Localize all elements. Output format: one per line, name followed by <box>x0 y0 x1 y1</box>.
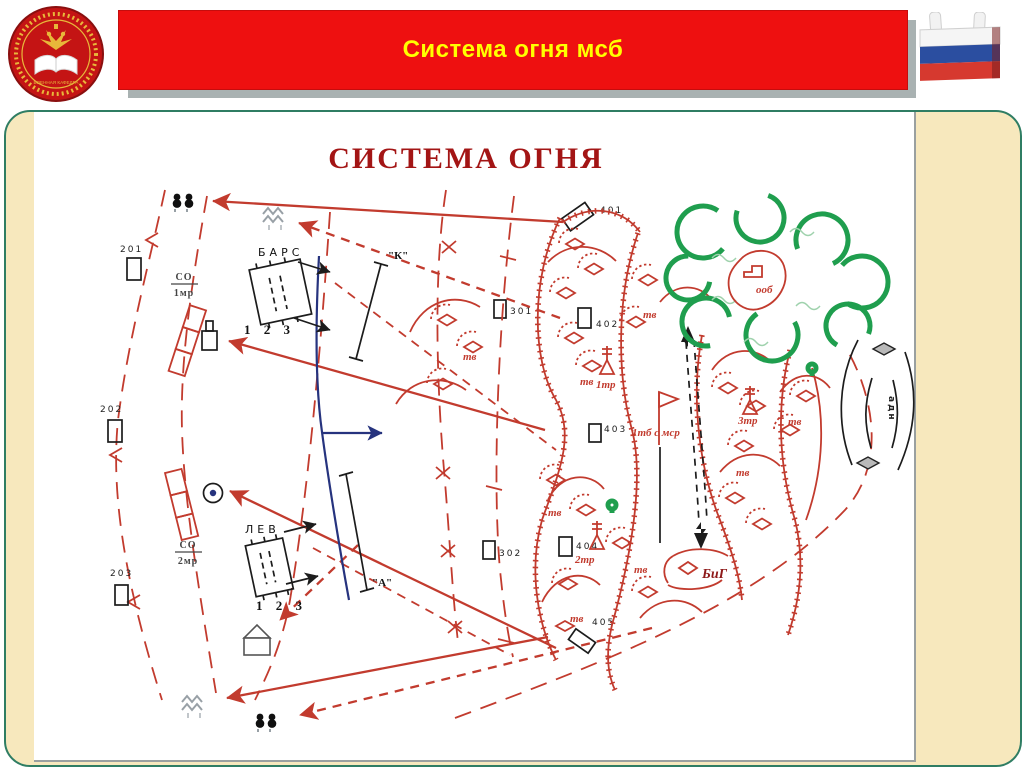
line-K: "К" <box>349 250 408 361</box>
svg-text:301: 301 <box>510 307 533 317</box>
sector-box-lev: ЛЕВ 1 2 3 <box>244 523 318 613</box>
svg-text:404: 404 <box>576 542 599 552</box>
slide: Система огня мсб ВОЕННАЯ КАФЕДРА <box>0 0 1024 767</box>
landmark-figures-bottom <box>256 714 277 732</box>
fire-system-map: СИСТЕМА ОГНЯ 201 202 203 301 302 401 402 <box>0 0 1024 767</box>
fire-concentration-2: СО 2мр <box>165 469 202 567</box>
landmark-point <box>204 484 223 503</box>
tank-platoon-labels: тв тв тв тв тв тв тв тв <box>463 309 802 625</box>
reference-points: 201 202 203 301 302 401 402 403 404 405 <box>100 202 627 653</box>
svg-text:тв: тв <box>463 351 477 363</box>
bush-icon <box>608 501 616 513</box>
svg-text:403: 403 <box>604 425 627 435</box>
svg-text:тв: тв <box>634 564 648 576</box>
svg-text:1мр: 1мр <box>174 288 194 299</box>
svg-text:1тб с мср: 1тб с мср <box>632 427 680 439</box>
svg-text:тв: тв <box>788 416 802 428</box>
svg-text:ооб: ооб <box>756 284 773 296</box>
svg-text:2мр: 2мр <box>178 556 198 567</box>
svg-text:202: 202 <box>100 405 123 415</box>
landmark-ruins-top <box>263 208 283 230</box>
forest: ооб <box>608 187 899 513</box>
company-posts: 1тр 2тр 3тр <box>574 346 758 566</box>
svg-text:1тр: 1тр <box>596 379 616 391</box>
landmark-tower <box>202 321 217 350</box>
armor-group: БиГ <box>664 549 728 589</box>
svg-text:"К": "К" <box>388 250 408 262</box>
landmark-figures-top <box>173 194 194 212</box>
svg-text:2тр: 2тр <box>574 554 595 566</box>
svg-text:203: 203 <box>110 569 133 579</box>
svg-text:адн: адн <box>886 396 896 422</box>
svg-text:тв: тв <box>736 467 750 479</box>
svg-text:402: 402 <box>596 320 619 330</box>
fire-opening-lines <box>313 190 556 657</box>
counterattack-route <box>681 326 708 549</box>
svg-text:1 2 3: 1 2 3 <box>256 598 307 613</box>
svg-text:тв: тв <box>643 309 657 321</box>
diagram-title: СИСТЕМА ОГНЯ <box>328 142 604 175</box>
battalion-command-post: 1тб с мср <box>632 392 680 543</box>
svg-text:3тр: 3тр <box>737 415 758 427</box>
named-fire-lines: "К" "А" <box>339 250 408 592</box>
forward-edge-lines <box>110 190 330 700</box>
svg-text:201: 201 <box>120 245 143 255</box>
svg-text:тв: тв <box>570 613 584 625</box>
svg-text:тв: тв <box>548 507 562 519</box>
svg-text:ЛЕВ: ЛЕВ <box>245 523 280 536</box>
svg-text:БиГ: БиГ <box>701 567 728 582</box>
svg-text:СО: СО <box>180 540 197 551</box>
line-A: "А" <box>339 472 392 592</box>
fire-reference-arrows <box>213 201 652 715</box>
svg-text:БАРС: БАРС <box>258 246 303 259</box>
svg-text:302: 302 <box>499 549 522 559</box>
svg-text:"А": "А" <box>372 577 392 589</box>
svg-text:1 2 3: 1 2 3 <box>244 322 295 337</box>
landmark-ruins-bottom <box>182 696 202 718</box>
bush-icon <box>808 364 816 376</box>
svg-text:тв: тв <box>580 376 594 388</box>
landmark-house <box>244 625 270 655</box>
fire-concentration-1: СО 1мр <box>169 272 206 376</box>
object-oob: ооб <box>729 251 786 310</box>
svg-text:СО: СО <box>176 272 193 283</box>
